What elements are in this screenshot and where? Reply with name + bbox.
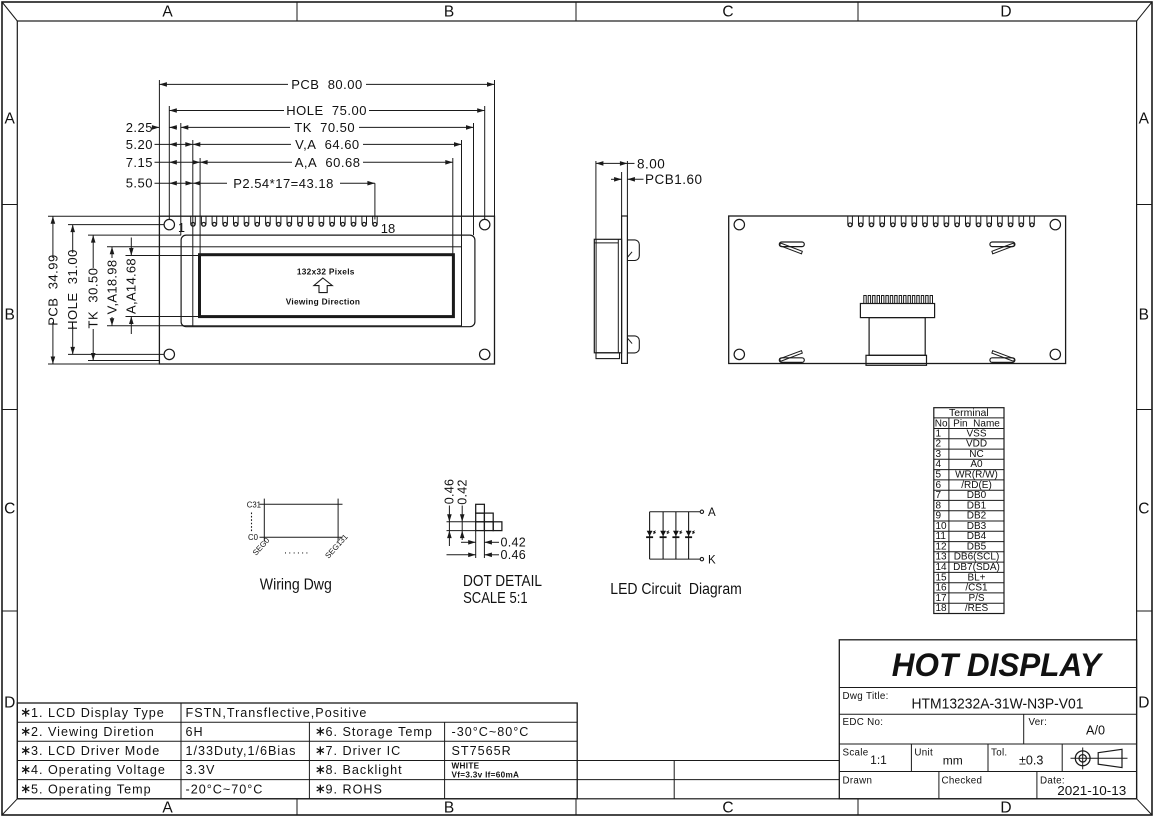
svg-text:C31: C31 xyxy=(247,500,261,509)
svg-text:A,A14.68: A,A14.68 xyxy=(124,258,139,314)
svg-text:TK 70.50: TK 70.50 xyxy=(294,120,355,135)
svg-text:HOLE 31.00: HOLE 31.00 xyxy=(65,249,80,330)
svg-text:5.20: 5.20 xyxy=(126,137,153,152)
svg-text:/RES: /RES xyxy=(965,603,989,614)
svg-text:TK 30.50: TK 30.50 xyxy=(86,268,101,329)
svg-text:HOLE 75.00: HOLE 75.00 xyxy=(286,103,367,118)
svg-text:C0: C0 xyxy=(248,533,259,542)
svg-text:PCB 80.00: PCB 80.00 xyxy=(291,77,363,92)
svg-text:D: D xyxy=(4,695,15,712)
svg-text:A: A xyxy=(162,4,173,21)
svg-text:0.42: 0.42 xyxy=(456,479,470,505)
svg-text:Vf=3.3v If=60mA: Vf=3.3v If=60mA xyxy=(452,771,520,780)
svg-text:D: D xyxy=(1000,4,1011,21)
svg-text:A,A 60.68: A,A 60.68 xyxy=(295,155,361,170)
svg-text:A: A xyxy=(708,507,716,519)
svg-text:Drawn: Drawn xyxy=(843,776,873,787)
svg-text:V,A18.98: V,A18.98 xyxy=(104,260,119,315)
svg-text:2021-10-13: 2021-10-13 xyxy=(1057,783,1126,798)
svg-text:Wiring Dwg: Wiring Dwg xyxy=(260,577,332,594)
svg-text:mm: mm xyxy=(943,754,963,768)
svg-text:5. Operating Temp: 5. Operating Temp xyxy=(31,782,152,796)
svg-text:DOT DETAIL: DOT DETAIL xyxy=(463,573,542,590)
svg-text:A: A xyxy=(162,800,173,817)
svg-text:B: B xyxy=(1139,307,1149,324)
svg-text:7.15: 7.15 xyxy=(126,155,153,170)
svg-text:......: ...... xyxy=(284,546,310,557)
svg-text:1/33Duty,1/6Bias: 1/33Duty,1/6Bias xyxy=(186,744,297,758)
svg-text:FSTN,Transflective,Positive: FSTN,Transflective,Positive xyxy=(186,706,368,720)
svg-text:A: A xyxy=(5,111,16,128)
svg-text:Terminal: Terminal xyxy=(949,407,989,419)
svg-text:C: C xyxy=(4,501,15,518)
svg-text:2.25: 2.25 xyxy=(126,120,153,135)
svg-text:-20°C~70°C: -20°C~70°C xyxy=(186,782,264,796)
svg-text:Ver:: Ver: xyxy=(1029,717,1048,728)
svg-text:HTM13232A-31W-N3P-V01: HTM13232A-31W-N3P-V01 xyxy=(912,697,1084,713)
svg-text:8.00: 8.00 xyxy=(637,156,665,171)
svg-text:Scale: Scale xyxy=(843,748,869,759)
svg-text:3. LCD Driver Mode: 3. LCD Driver Mode xyxy=(31,744,160,758)
svg-text:A/0: A/0 xyxy=(1086,724,1105,738)
svg-text:HOT DISPLAY: HOT DISPLAY xyxy=(892,647,1104,683)
svg-text:PCB1.60: PCB1.60 xyxy=(645,172,703,187)
svg-text:WHITE: WHITE xyxy=(452,762,480,771)
svg-text:1. LCD Display Type: 1. LCD Display Type xyxy=(31,706,165,720)
svg-text:18: 18 xyxy=(381,221,395,236)
svg-text:7. Driver IC: 7. Driver IC xyxy=(326,744,402,758)
svg-text:C: C xyxy=(722,800,733,817)
svg-text:ST7565R: ST7565R xyxy=(452,744,512,758)
svg-text:18: 18 xyxy=(936,603,948,614)
svg-text:C: C xyxy=(722,4,733,21)
svg-text:4. Operating Voltage: 4. Operating Voltage xyxy=(31,763,166,777)
svg-text:SCALE 5:1: SCALE 5:1 xyxy=(463,590,527,607)
svg-text:V,A 64.60: V,A 64.60 xyxy=(295,137,360,152)
svg-text:5.50: 5.50 xyxy=(126,176,153,191)
svg-text:C: C xyxy=(1138,501,1149,518)
svg-text:3.3V: 3.3V xyxy=(186,763,216,777)
svg-text:K: K xyxy=(708,555,716,567)
svg-text:0.46: 0.46 xyxy=(501,548,527,562)
svg-text:9. ROHS: 9. ROHS xyxy=(326,782,383,796)
svg-text:8. Backlight: 8. Backlight xyxy=(326,763,403,777)
svg-text:Viewing Direction: Viewing Direction xyxy=(286,296,361,306)
svg-text:2. Viewing Diretion: 2. Viewing Diretion xyxy=(31,725,155,739)
svg-text:-30°C~80°C: -30°C~80°C xyxy=(452,725,530,739)
svg-text:Unit: Unit xyxy=(914,748,933,759)
svg-text:132x32 Pixels: 132x32 Pixels xyxy=(297,266,355,276)
svg-text:Dwg Title:: Dwg Title: xyxy=(843,691,889,702)
svg-text:Tol.: Tol. xyxy=(991,748,1007,759)
svg-text:1: 1 xyxy=(178,221,185,235)
svg-text:LED Circuit Diagram: LED Circuit Diagram xyxy=(610,581,742,598)
svg-text:6. Storage Temp: 6. Storage Temp xyxy=(326,725,433,739)
svg-text:P2.54*17=43.18: P2.54*17=43.18 xyxy=(233,176,334,191)
svg-text:PCB 34.99: PCB 34.99 xyxy=(45,254,60,326)
svg-text:B: B xyxy=(444,4,454,21)
svg-text:Checked: Checked xyxy=(942,776,983,787)
svg-text:B: B xyxy=(5,307,15,324)
svg-text:EDC No:: EDC No: xyxy=(843,717,884,728)
svg-text:D: D xyxy=(1138,695,1149,712)
svg-text:B: B xyxy=(444,800,454,817)
svg-text:1:1: 1:1 xyxy=(870,753,887,767)
svg-text:6H: 6H xyxy=(186,725,204,739)
svg-text:D: D xyxy=(1000,800,1011,817)
svg-text:A: A xyxy=(1139,111,1150,128)
svg-text:±0.3: ±0.3 xyxy=(1019,754,1043,768)
